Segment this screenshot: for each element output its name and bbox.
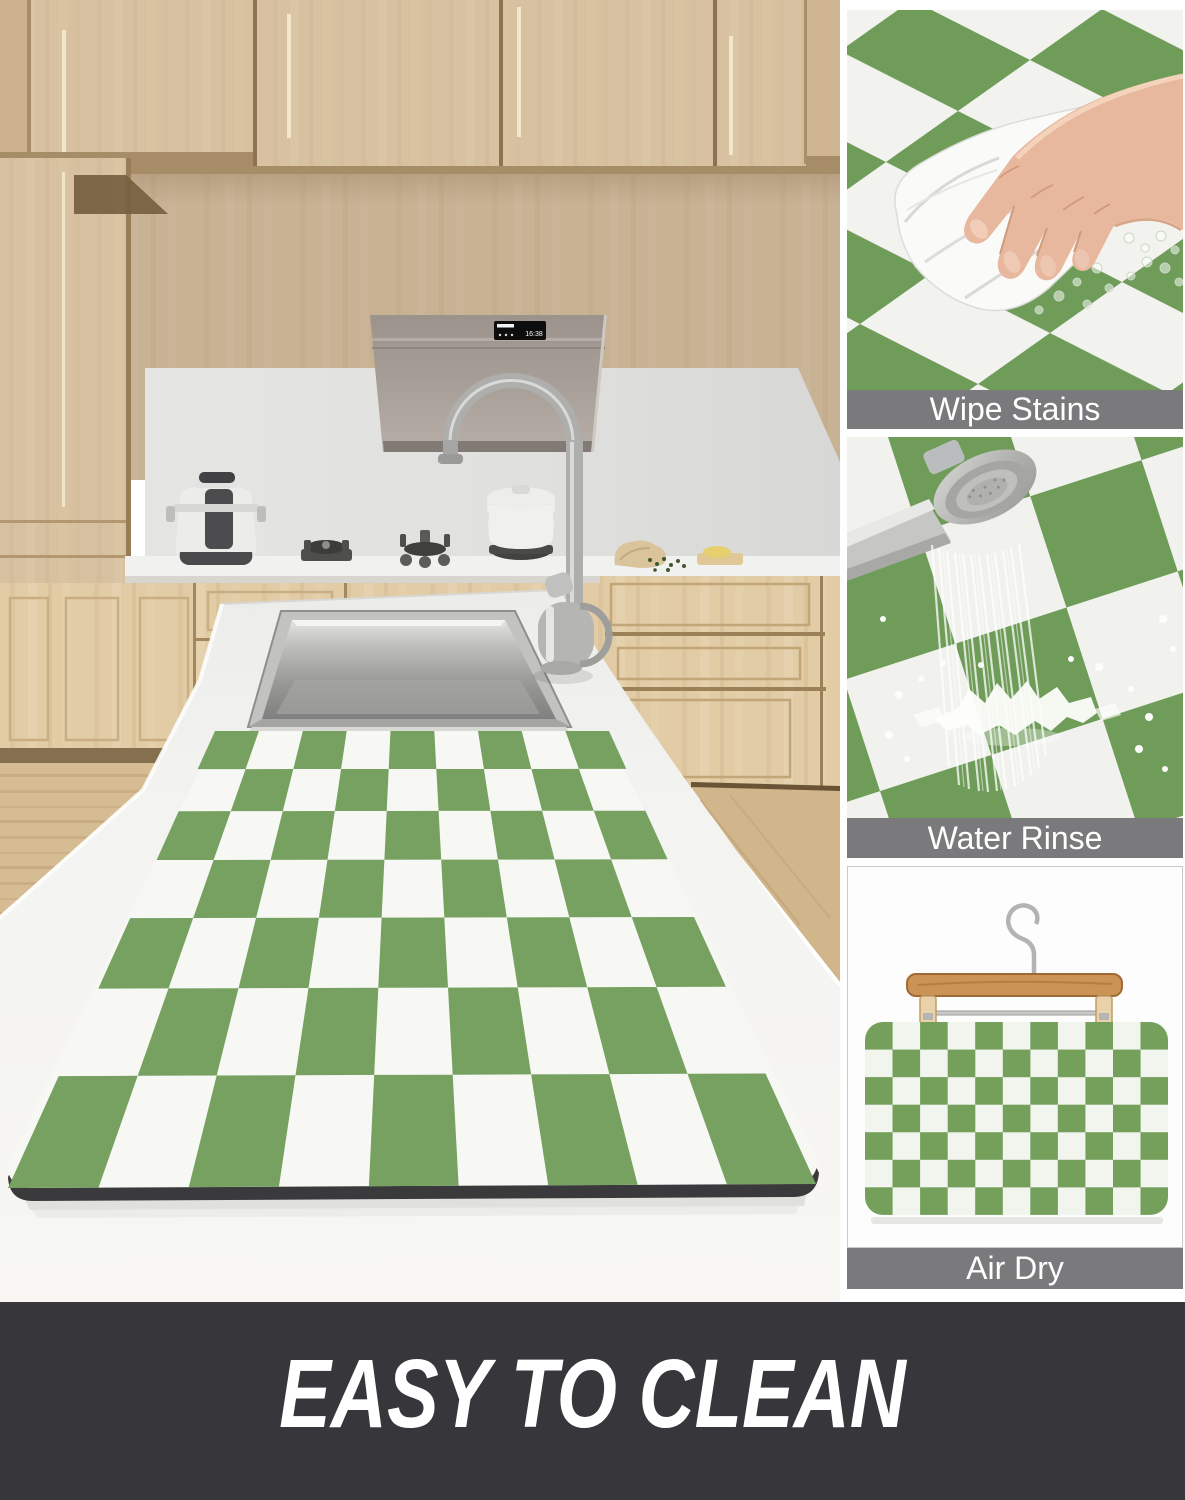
svg-text:16:38: 16:38 <box>525 331 543 338</box>
